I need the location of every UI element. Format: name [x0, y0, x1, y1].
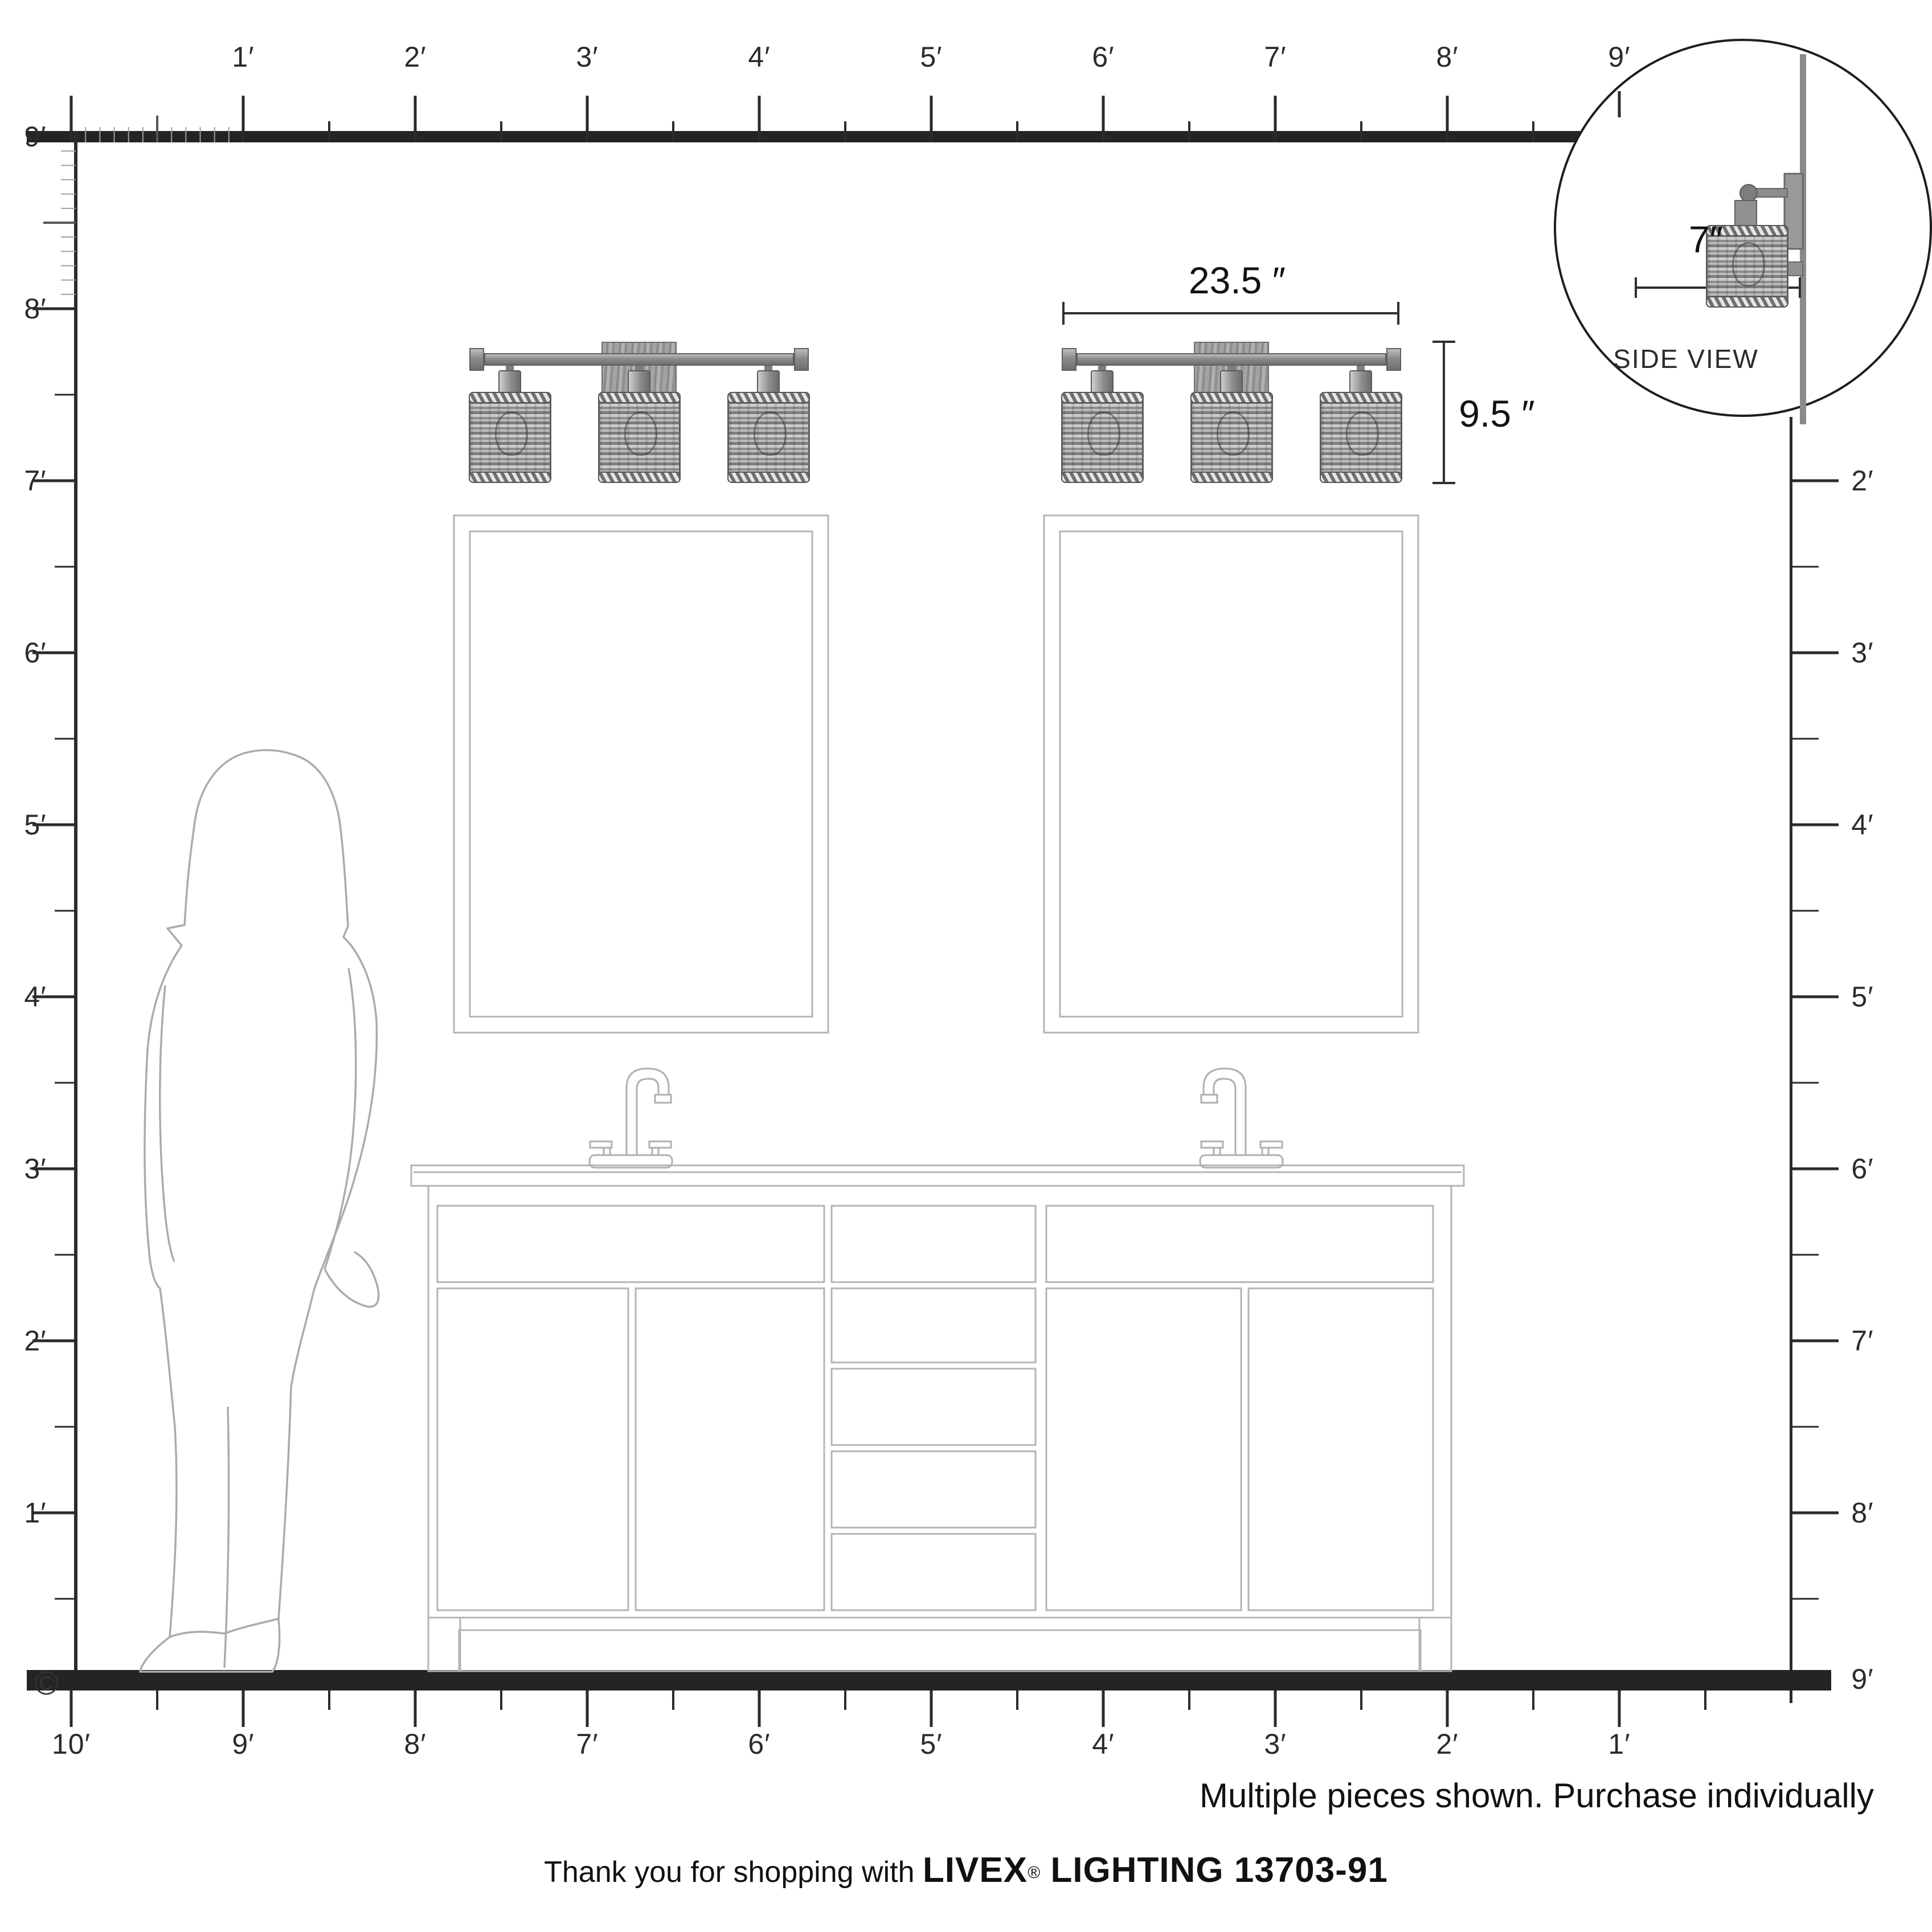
faucet-handle-stem [604, 1148, 610, 1155]
fixture-socket [498, 370, 521, 394]
footer-thanks-line: Thank you for shopping with LIVEX® LIGHT… [0, 1850, 1932, 1890]
ruler-label-left: 7′ [24, 464, 46, 497]
ruler-label-bottom: 10′ [52, 1728, 91, 1761]
fixture-bar [484, 353, 794, 366]
sconce-socket-side [1735, 200, 1757, 226]
left-mirror [454, 515, 828, 1033]
ruler-label-right: 5′ [1851, 980, 1873, 1013]
ruler-ticks [32, 91, 1839, 1727]
vanity-cabinet [411, 1165, 1464, 1671]
registered-mark: ® [1028, 1864, 1040, 1882]
left-mirror-inner [470, 531, 812, 1017]
depth-dimension-label: 7″ [1689, 218, 1723, 261]
woman-boot-line [170, 1632, 224, 1637]
ruler-label-top: 4′ [748, 40, 770, 73]
bulb-outline [754, 411, 787, 456]
height-dimension-label: 9.5 ″ [1459, 392, 1534, 435]
right-foot [1419, 1618, 1451, 1671]
bottom-ruler-line [27, 1670, 1831, 1690]
ruler-label-right: 4′ [1851, 808, 1873, 841]
left-faucet [590, 1069, 672, 1168]
ruler-label-bottom: 5′ [920, 1728, 942, 1761]
sconce-ball-joint [1740, 185, 1757, 202]
bulb-outline [1732, 242, 1765, 286]
faucet-handle-left [590, 1141, 612, 1148]
faucet-handle-stem [1214, 1148, 1220, 1155]
fixture-bar-endcap [469, 348, 484, 371]
purchase-note: Multiple pieces shown. Purchase individu… [968, 1776, 1874, 1815]
fixture-socket [757, 370, 780, 394]
ruler-label-bottom: 3′ [1264, 1728, 1286, 1761]
ruler-label-top: 3′ [576, 40, 598, 73]
line-art [0, 0, 1932, 1932]
drawer-stack-4 [832, 1534, 1035, 1610]
faucet-handle-stem [652, 1148, 658, 1155]
drawer-stack-3 [832, 1451, 1035, 1528]
ruler-label-bottom: 2′ [1436, 1728, 1458, 1761]
right-ruler-line [1790, 417, 1792, 1703]
fixture-bar-endcap [1386, 348, 1401, 371]
drawer-top-center [832, 1206, 1035, 1282]
spec-sheet: 1′2′3′4′5′6′7′8′9′9′8′7′6′5′4′3′2′1′2′3′… [0, 0, 1932, 1932]
ruler-label-bottom: 4′ [1092, 1728, 1114, 1761]
ruler-label-right: 9′ [1851, 1663, 1873, 1696]
ruler-label-bottom: 9′ [232, 1728, 254, 1761]
ruler-label-right: 8′ [1851, 1496, 1873, 1529]
bulb-outline [495, 411, 528, 456]
toe-kick [459, 1630, 1421, 1671]
faucet-spout-tip [655, 1095, 671, 1103]
fixture-socket [628, 370, 650, 394]
mirrors [454, 515, 1418, 1033]
drawer-top-left [437, 1206, 824, 1282]
drawer-stack-2 [832, 1369, 1035, 1445]
ruler-label-top: 5′ [920, 40, 942, 73]
door-right-2 [1249, 1288, 1433, 1610]
fixture-bar-endcap [794, 348, 809, 371]
fixture-bar [1076, 353, 1386, 366]
thanks-text: Thank you for shopping with [544, 1856, 923, 1889]
ruler-label-top: 7′ [1264, 40, 1286, 73]
fixture-socket [1091, 370, 1114, 394]
fixture-socket [1349, 370, 1372, 394]
top-ruler-line [27, 131, 1585, 142]
copyright-mark: © [34, 1664, 59, 1702]
right-faucet [1200, 1069, 1283, 1168]
product-sku: LIGHTING 13703-91 [1040, 1851, 1388, 1890]
left-foot [428, 1618, 460, 1671]
faucet-spout-inner [637, 1079, 658, 1155]
faucet-spout-tip [1201, 1095, 1217, 1103]
ruler-label-left: 6′ [24, 636, 46, 669]
right-mirror [1044, 515, 1418, 1033]
faucet-handle [1260, 1141, 1282, 1148]
ruler-label-bottom: 1′ [1608, 1728, 1630, 1761]
door-left-2 [636, 1288, 824, 1610]
ruler-label-left: 1′ [24, 1496, 46, 1529]
ruler-label-right: 2′ [1851, 464, 1873, 497]
woman-silhouette [140, 750, 379, 1672]
ruler-label-top: 8′ [1436, 40, 1458, 73]
drawer-stack-1 [832, 1288, 1035, 1362]
fixture-socket [1220, 370, 1243, 394]
ruler-label-right: 6′ [1851, 1152, 1873, 1185]
ruler-label-left: 5′ [24, 808, 46, 841]
brand-name: LIVEX [923, 1851, 1028, 1890]
door-left-1 [437, 1288, 628, 1610]
ruler-label-bottom: 6′ [748, 1728, 770, 1761]
cabinet-body [428, 1186, 1451, 1618]
faucet-spout-inner [1214, 1079, 1235, 1155]
ruler-label-left: 3′ [24, 1152, 46, 1185]
faucet-handle [1201, 1141, 1223, 1148]
bulb-outline [1087, 411, 1120, 456]
ruler-label-left: 8′ [24, 292, 46, 325]
width-dimension-label: 23.5 ″ [1189, 259, 1286, 302]
ruler-label-top: 9′ [1608, 40, 1630, 73]
right-mirror-inner [1060, 531, 1402, 1017]
ruler-label-top: 6′ [1092, 40, 1114, 73]
bulb-outline [624, 411, 657, 456]
woman-left-arm-line [160, 985, 174, 1262]
bulb-outline [1346, 411, 1379, 456]
fixture-bar-endcap [1062, 348, 1076, 371]
side-view-label: SIDE VIEW [1613, 343, 1759, 374]
woman-right-arm-line [325, 968, 356, 1269]
sconce-mount-tab [1787, 262, 1803, 276]
woman-boot-line [224, 1619, 279, 1634]
drawer-top-right [1046, 1206, 1433, 1282]
ruler-label-left: 9′ [24, 120, 46, 153]
woman-leg-seam [224, 1407, 229, 1668]
faucet-handle-right [649, 1141, 671, 1148]
ruler-label-top: 1′ [232, 40, 254, 73]
bulb-outline [1217, 411, 1250, 456]
faucet-handle-stem [1262, 1148, 1268, 1155]
countertop [411, 1165, 1464, 1186]
ruler-label-right: 3′ [1851, 636, 1873, 669]
ruler-label-bottom: 8′ [404, 1728, 426, 1761]
ruler-label-left: 2′ [24, 1324, 46, 1357]
ruler-label-right: 7′ [1851, 1324, 1873, 1357]
woman-hand-line [325, 1252, 379, 1307]
ruler-label-top: 2′ [404, 40, 426, 73]
door-right-1 [1046, 1288, 1241, 1610]
ruler-label-bottom: 7′ [576, 1728, 598, 1761]
ruler-label-left: 4′ [24, 980, 46, 1013]
